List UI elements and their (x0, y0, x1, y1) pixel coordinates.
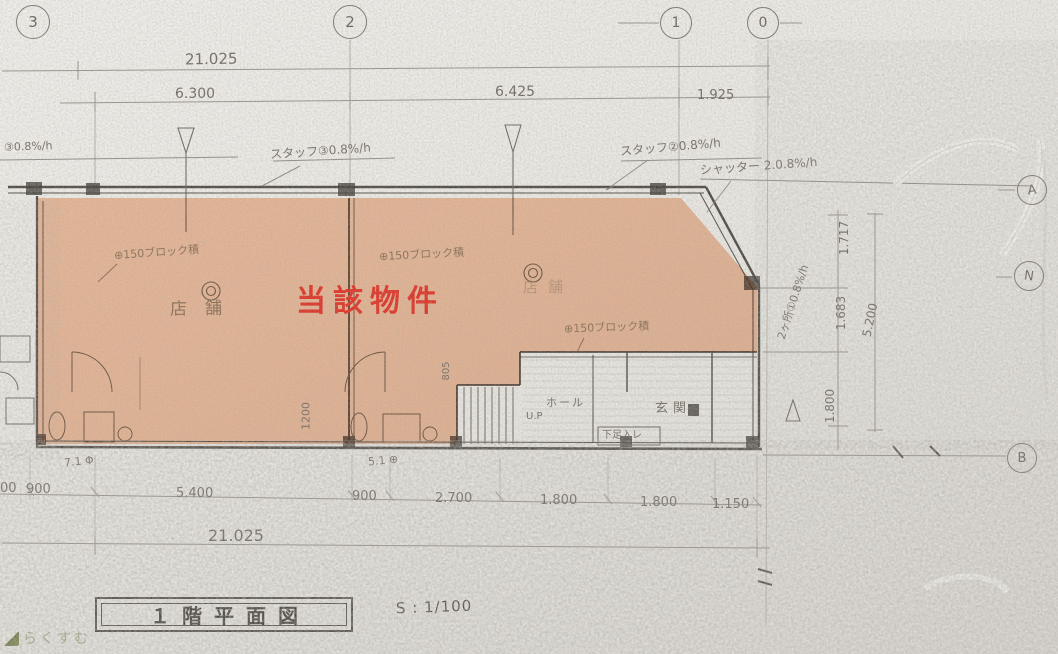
hall-hatch (522, 360, 755, 437)
scanned-floor-plan-page: 3 2 1 0 A N B 21.025 6.300 6.425 1.925 0… (0, 0, 1058, 654)
stairs (464, 387, 513, 444)
highlight-area (38, 198, 757, 444)
paper-creases (895, 138, 1047, 592)
floor-plan-drawing (0, 0, 1058, 654)
